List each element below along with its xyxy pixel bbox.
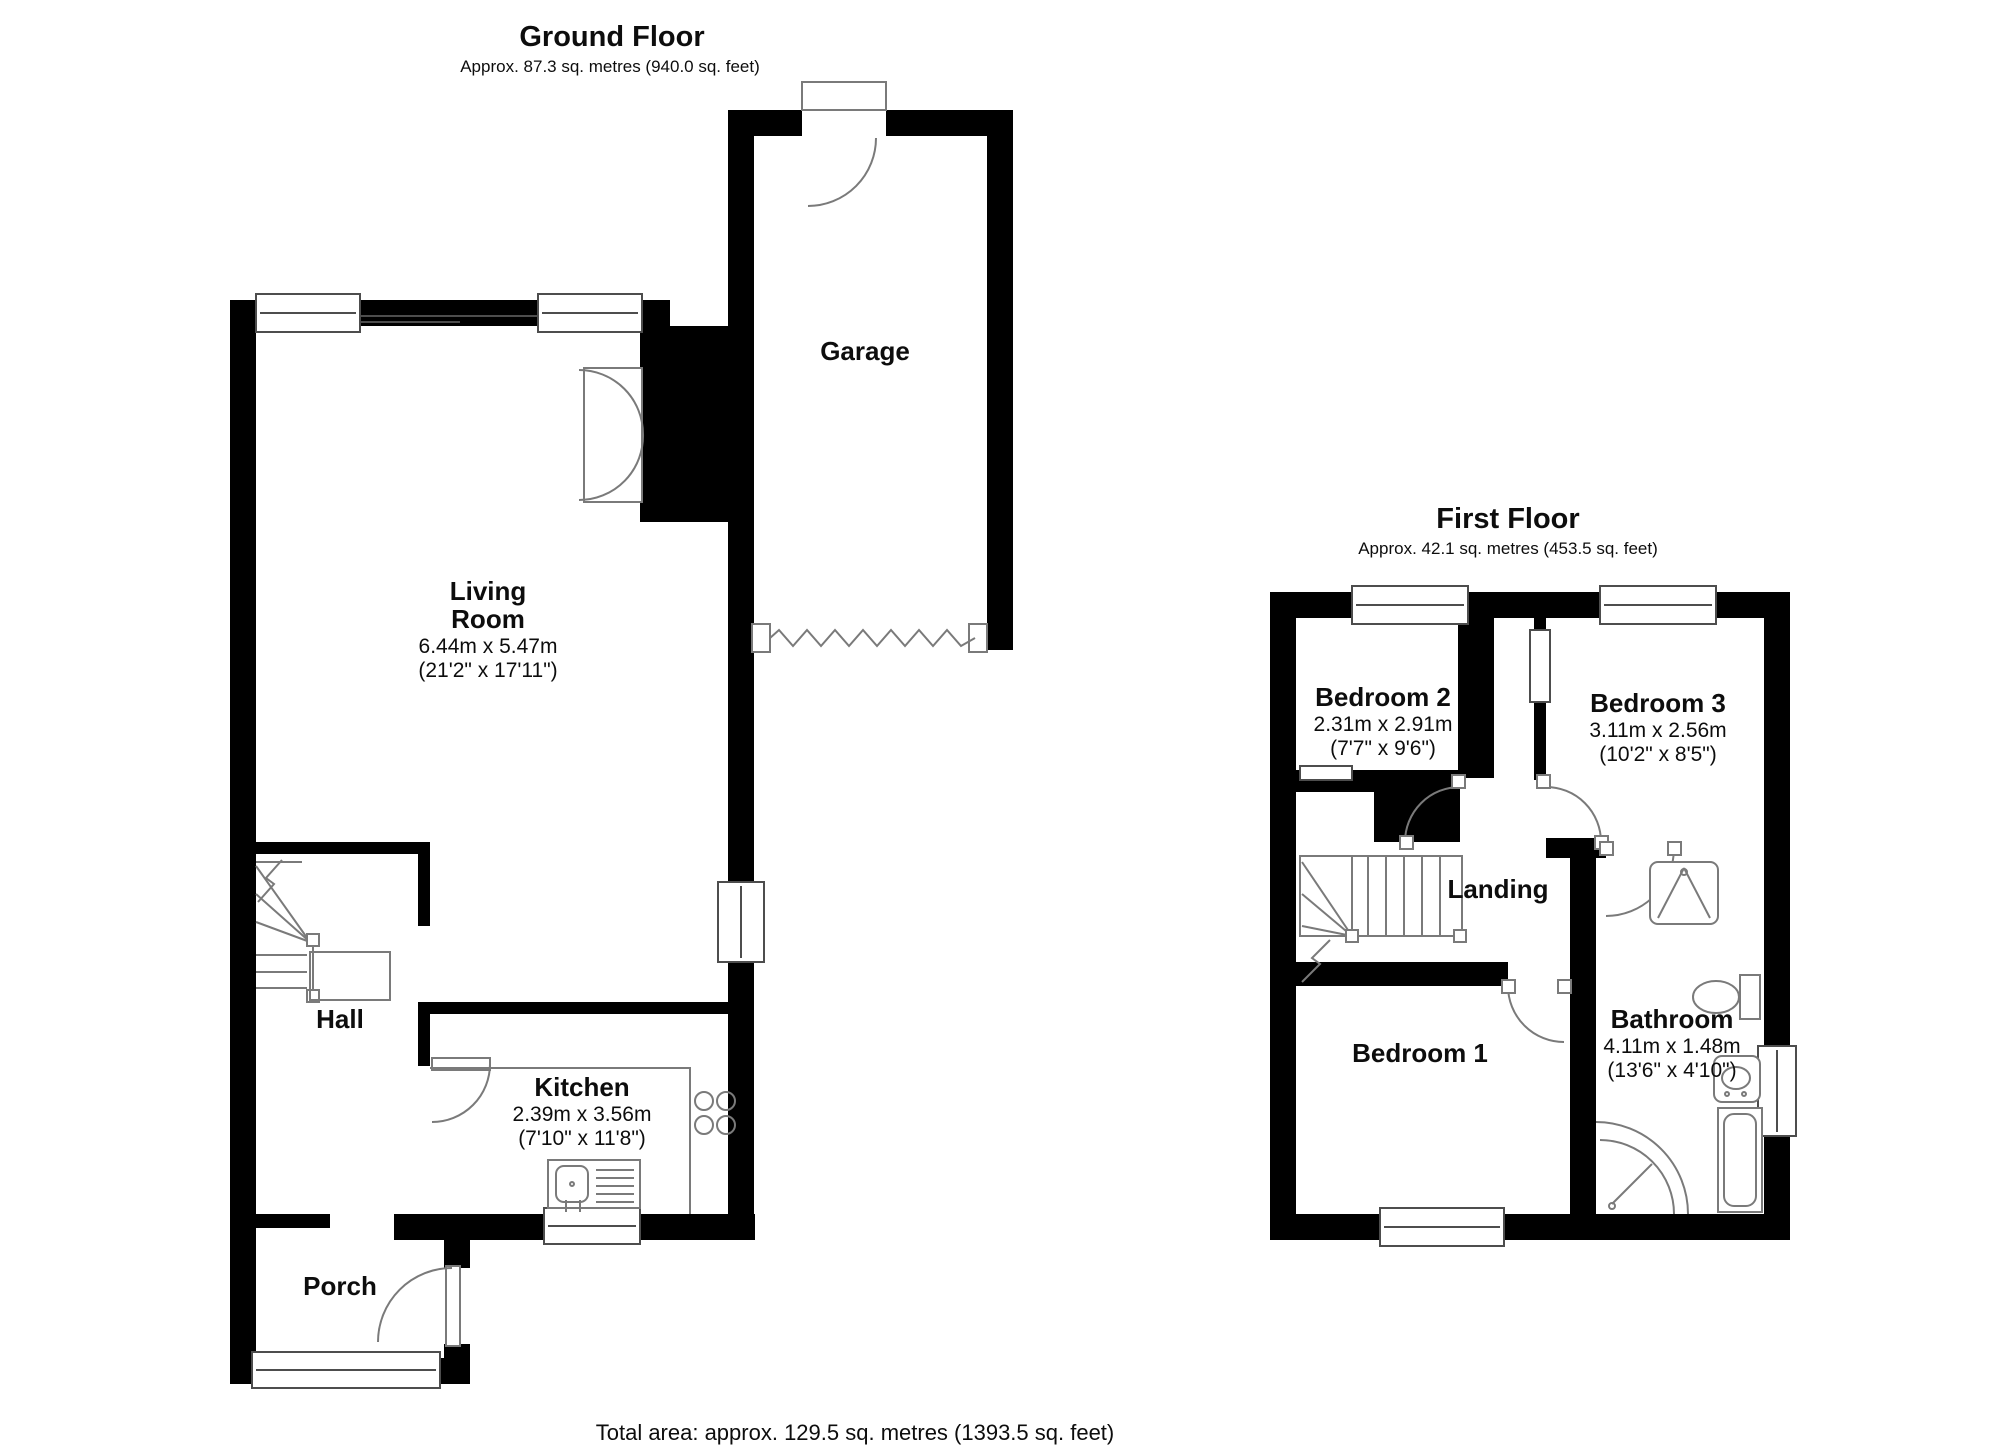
floorplan-page: Ground Floor Approx. 87.3 sq. metres (94…	[0, 0, 2000, 1454]
kitchen-dims-m: 2.39m x 3.56m	[513, 1103, 652, 1126]
bedroom3-label: Bedroom 3	[1590, 688, 1726, 718]
bathroom-dims-m: 4.11m x 1.48m	[1603, 1035, 1740, 1058]
bedroom2-inner-window	[1300, 766, 1352, 780]
bedroom2-window	[1352, 586, 1468, 624]
garage-door	[752, 82, 987, 652]
shower-tray	[1650, 862, 1718, 924]
bedroom2-label: Bedroom 2	[1315, 682, 1451, 712]
corner-shower	[1596, 1122, 1688, 1214]
bedroom3-inner-window	[1530, 630, 1550, 702]
side-window	[718, 882, 764, 962]
french-doors	[579, 368, 643, 502]
kitchen-dims-ft: (7'10" x 11'8")	[518, 1127, 646, 1150]
landing-label: Landing	[1447, 874, 1548, 904]
bathtub	[1718, 1108, 1762, 1212]
ground-floor-title: Ground Floor	[519, 21, 704, 53]
hall-label: Hall	[316, 1004, 364, 1034]
ground-floor: Ground Floor Approx. 87.3 sq. metres (94…	[230, 21, 1013, 1388]
first-floor-title: First Floor	[1436, 503, 1579, 535]
ground-floor-subtitle: Approx. 87.3 sq. metres (940.0 sq. feet)	[460, 57, 760, 76]
living-room-label-line2: Room	[451, 604, 525, 634]
floorplan-canvas: Ground Floor Approx. 87.3 sq. metres (94…	[0, 0, 2000, 1454]
bedroom1-label: Bedroom 1	[1352, 1038, 1488, 1068]
bedroom1-door	[1502, 980, 1571, 1042]
porch-window	[252, 1352, 440, 1388]
total-area-label: Total area: approx. 129.5 sq. metres (13…	[596, 1420, 1115, 1445]
garage-opening-zigzag	[770, 630, 975, 646]
bathroom-window	[1758, 1046, 1796, 1136]
bedroom1-window	[1380, 1208, 1504, 1246]
bathroom-dims-ft: (13'6" x 4'10")	[1607, 1059, 1736, 1082]
living-room-dims-ft: (21'2" x 17'11")	[418, 659, 557, 682]
bedroom3-dims-ft: (10'2" x 8'5")	[1599, 743, 1716, 766]
bedroom3-window	[1600, 586, 1716, 624]
bedroom2-dims-ft: (7'7" x 9'6")	[1330, 737, 1436, 760]
bedroom3-door	[1537, 775, 1608, 849]
bedroom2-dims-m: 2.31m x 2.91m	[1314, 713, 1453, 736]
hall-stairs	[256, 860, 390, 1002]
living-room-label-line1: Living	[450, 576, 527, 606]
bathroom-label: Bathroom	[1611, 1004, 1734, 1034]
kitchen-label: Kitchen	[534, 1072, 629, 1102]
porch-door	[378, 1266, 460, 1346]
first-floor: First Floor Approx. 42.1 sq. metres (453…	[1270, 503, 1796, 1246]
porch-label: Porch	[303, 1271, 377, 1301]
kitchen-sink	[548, 1160, 640, 1212]
first-floor-subtitle: Approx. 42.1 sq. metres (453.5 sq. feet)	[1358, 539, 1658, 558]
living-room-window-right	[538, 294, 642, 332]
living-room-window-left	[256, 294, 360, 332]
bedroom3-dims-m: 3.11m x 2.56m	[1589, 719, 1726, 742]
garage-label: Garage	[820, 336, 910, 366]
kitchen-sink-window	[544, 1208, 640, 1244]
living-room-dims-m: 6.44m x 5.47m	[419, 635, 558, 658]
